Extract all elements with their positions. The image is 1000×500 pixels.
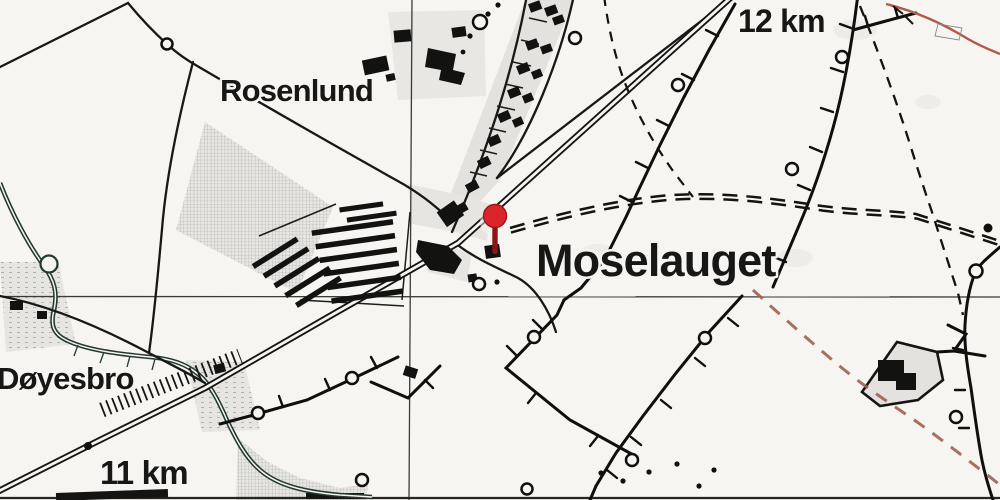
label-km-12: 12 km bbox=[738, 3, 825, 39]
pin-stem bbox=[492, 224, 497, 254]
label-km-11: 11 km bbox=[100, 454, 188, 491]
label-rosenlund: Rosenlund bbox=[220, 73, 373, 108]
rosenlund-building bbox=[394, 29, 412, 42]
boundary-stone-dot bbox=[984, 224, 993, 233]
label-doyesbro: Døyesbro bbox=[0, 361, 134, 396]
pin-head bbox=[484, 205, 507, 228]
pond-circle bbox=[41, 256, 58, 273]
km-post-dot bbox=[84, 442, 92, 450]
grid-line-horizontal bbox=[0, 297, 1000, 298]
map-viewport[interactable]: Rosenlund Moselauget Døyesbro 11 km 12 k… bbox=[0, 0, 1000, 500]
label-moselauget: Moselauget bbox=[536, 235, 776, 286]
map-canvas: Rosenlund Moselauget Døyesbro 11 km 12 k… bbox=[0, 0, 1000, 500]
